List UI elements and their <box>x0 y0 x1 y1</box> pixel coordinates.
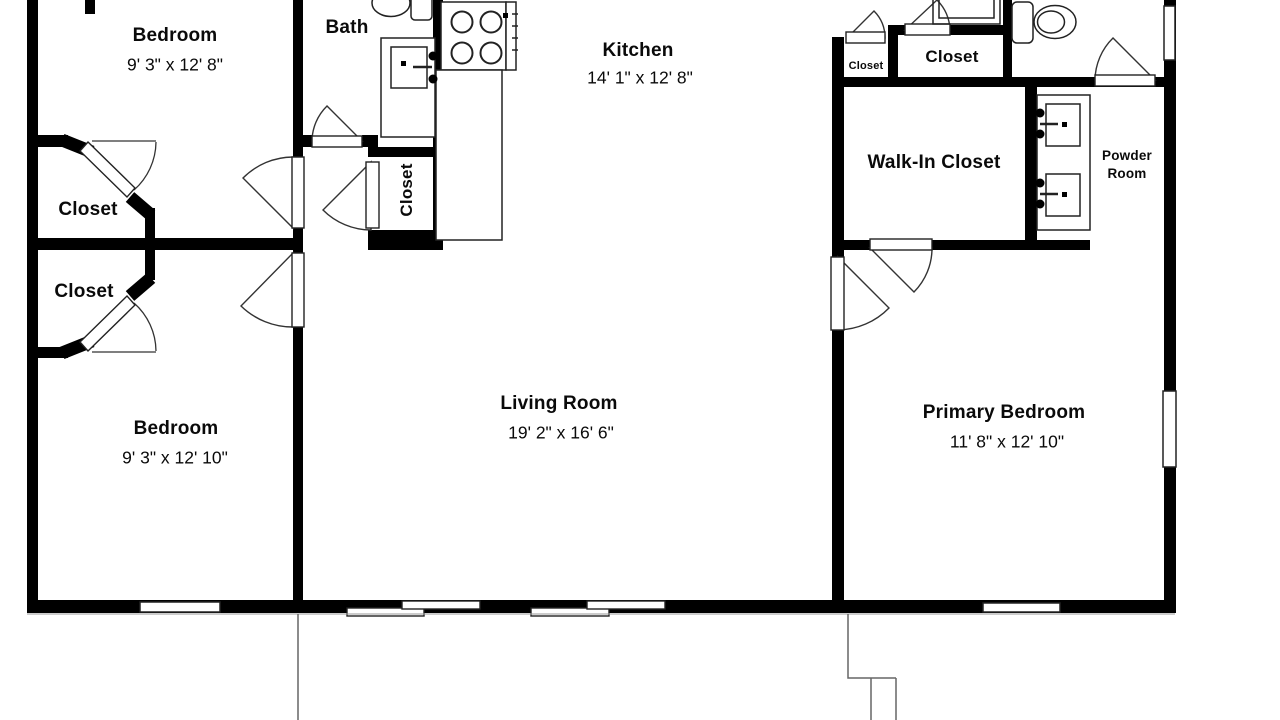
room-label-bath: Bath <box>325 17 368 39</box>
room-label-kitchen: Kitchen <box>602 40 673 62</box>
room-label-primary-bedroom: Primary Bedroom <box>923 402 1085 424</box>
deck <box>27 614 1175 720</box>
room-dims-bedroom-bottom: 9' 3" x 12' 10" <box>122 448 228 469</box>
room-label-bedroom-top: Bedroom <box>133 25 218 47</box>
room-label-living-room: Living Room <box>500 393 617 415</box>
kitchen-counter <box>436 70 502 240</box>
room-label-closet-hall: Closet <box>397 163 417 216</box>
powder-room-line1: Powder <box>1102 147 1152 165</box>
bath-toilet <box>372 0 432 20</box>
room-dims-primary-bedroom: 11' 8" x 12' 10" <box>950 432 1064 453</box>
room-dims-bedroom-top: 9' 3" x 12' 8" <box>127 55 223 76</box>
walls <box>27 0 1176 613</box>
room-label-walk-in-closet: Walk-In Closet <box>868 152 1001 174</box>
room-dims-living-room: 19' 2" x 16' 6" <box>508 423 614 444</box>
room-dims-kitchen: 14' 1" x 12' 8" <box>587 68 693 89</box>
room-label-closet-left-lower: Closet <box>54 281 113 303</box>
toilet <box>1012 2 1076 43</box>
stove <box>441 2 518 70</box>
floor-plan-drawing <box>0 0 1280 720</box>
room-label-closet-top-right: Closet <box>925 47 978 67</box>
powder-vanity <box>1036 95 1091 230</box>
room-label-closet-small: Closet <box>849 60 884 72</box>
room-label-powder-room: Powder Room <box>1102 147 1152 183</box>
bath-sink <box>381 38 438 137</box>
floor-plan: Bedroom 9' 3" x 12' 8" Bath Kitchen 14' … <box>0 0 1280 720</box>
room-label-closet-left-upper: Closet <box>58 199 117 221</box>
powder-room-line2: Room <box>1102 165 1152 183</box>
room-label-bedroom-bottom: Bedroom <box>134 418 219 440</box>
